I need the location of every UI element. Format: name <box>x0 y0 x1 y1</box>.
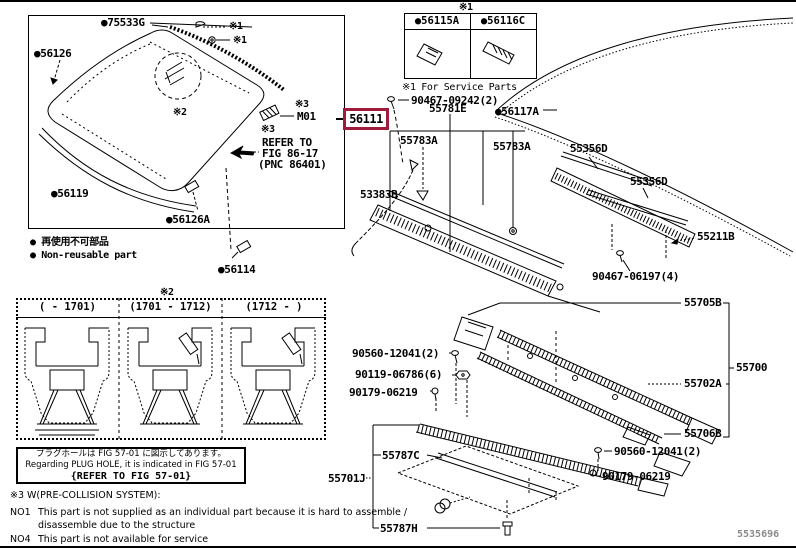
part-label-55700[interactable]: 55700 <box>736 362 767 373</box>
page-code: 5535696 <box>737 529 779 540</box>
screw-icon <box>612 224 666 271</box>
parts-catalog-page: ●75533G ※1 ※1 ●56126 ※2 ※3 M01 ※3 REFER … <box>0 0 796 549</box>
part-label-55702a[interactable]: 55702A <box>684 378 721 389</box>
lower-cowl-art <box>454 303 734 445</box>
part-label-55705b[interactable]: 55705B <box>684 297 721 308</box>
part-label-56115a[interactable]: ●56115A <box>405 14 469 29</box>
refer-pnc-text: (PNC 86401) <box>258 159 326 170</box>
footnote-no1-label: NO1 <box>10 507 31 518</box>
marker-x1: ※1 <box>229 21 243 32</box>
footnote-precollision: ※3 W(PRE-COLLISION SYSTEM): <box>10 490 161 501</box>
part-label-56116c[interactable]: ●56116C <box>471 14 535 29</box>
screw-icon <box>388 97 409 164</box>
callout-bracket <box>336 110 557 252</box>
part-label-m01[interactable]: M01 <box>297 111 316 122</box>
part-label-53383b[interactable]: 53383B <box>360 189 397 200</box>
highlighted-part-56111[interactable]: 56111 <box>343 108 389 130</box>
footnote-no1-line2: disassemble due to the structure <box>38 520 195 531</box>
plug-note-jp: プラグホールは FIG 57-01 に図示してあります。 <box>18 449 244 460</box>
marker-x1: ※1 <box>233 35 247 46</box>
plug-note-en: Regarding PLUG HOLE, it is indicated in … <box>18 460 244 471</box>
part-label-55781e[interactable]: 55781E <box>429 103 466 114</box>
part-label-55783a[interactable]: 55783A <box>493 141 530 152</box>
part-label-56126[interactable]: ●56126 <box>34 48 71 59</box>
footnote-no4-label: NO4 <box>10 534 31 545</box>
footnote-no1-line1: This part is not supplied as an individu… <box>38 507 407 518</box>
variant-header-3: (1712 - ) <box>222 300 326 315</box>
part-label-55787c[interactable]: 55787C <box>382 450 419 461</box>
clip-icon <box>237 241 251 253</box>
part-label-55356d[interactable]: 55356D <box>570 143 607 154</box>
variant-header-1: ( - 1701) <box>16 300 119 315</box>
part-label-55783a[interactable]: 55783A <box>400 135 437 146</box>
dash-panel-art <box>551 168 696 247</box>
plug-note-refer: {REFER TO FIG 57-01} <box>18 471 244 482</box>
molding-strips-art <box>561 152 688 225</box>
marker-x2: ※2 <box>160 287 174 298</box>
plug-hole-note-box: プラグホールは FIG 57-01 に図示してあります。 Regarding P… <box>16 447 246 484</box>
part-label-56114[interactable]: ●56114 <box>218 264 255 275</box>
cowl-louver-art <box>370 191 600 312</box>
legend-en: ● Non-reusable part <box>30 250 137 261</box>
service-parts-header-line <box>404 29 537 30</box>
part-label-55356d[interactable]: 55356D <box>630 176 667 187</box>
marker-x1: ※1 <box>459 2 473 13</box>
part-label-56119[interactable]: ●56119 <box>51 188 88 199</box>
part-label-90467-06197[interactable]: 90467-06197(4) <box>592 271 679 282</box>
part-label-75533g[interactable]: ●75533G <box>101 17 145 28</box>
part-label-55706b[interactable]: 55706B <box>684 428 721 439</box>
variant-header-2: (1701 - 1712) <box>119 300 222 315</box>
service-parts-caption: ※1 For Service Parts <box>402 82 517 93</box>
part-label-90119-06786[interactable]: 90119-06786(6) <box>355 369 442 380</box>
legend-jp: ● 再使用不可部品 <box>30 237 108 248</box>
part-label-90560-12041[interactable]: 90560-12041(2) <box>352 348 439 359</box>
part-label-55701j[interactable]: 55701J <box>328 473 365 484</box>
part-label-56117a[interactable]: ●56117A <box>495 106 539 117</box>
part-label-90179-06219[interactable]: 90179-06219 <box>349 387 417 398</box>
fastener-icons <box>430 351 470 417</box>
footnote-no4-line1: This part is not available for service <box>38 534 208 545</box>
part-label-56126a[interactable]: ●56126A <box>166 214 210 225</box>
part-label-90560-12041[interactable]: 90560-12041(2) <box>614 446 701 457</box>
part-label-90179-06219[interactable]: 90179-06219 <box>602 471 670 482</box>
marker-x3: ※3 <box>261 124 275 135</box>
marker-x2: ※2 <box>173 107 187 118</box>
part-label-55211b[interactable]: 55211B <box>697 231 734 242</box>
part-label-55787h[interactable]: 55787H <box>380 523 417 534</box>
variant-box-frame <box>16 298 326 440</box>
marker-x3: ※3 <box>295 99 309 110</box>
